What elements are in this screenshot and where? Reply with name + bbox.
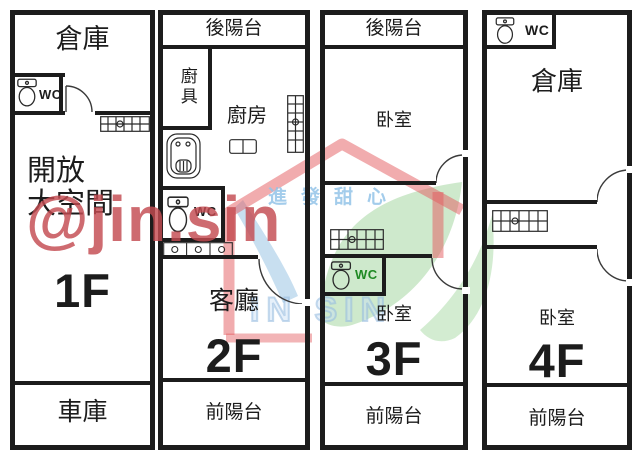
door-frame-notch [626, 279, 634, 286]
stairs-icon [330, 229, 384, 250]
wall [325, 254, 432, 258]
toilet-icon [16, 77, 38, 109]
wall [487, 245, 597, 249]
floor-label-2f: 2F [163, 330, 305, 382]
garage-label: 車庫 [15, 399, 150, 427]
stairs-icon [492, 210, 548, 232]
door-icon [436, 153, 466, 185]
wall [552, 15, 556, 49]
storage-label: 倉庫 [15, 25, 150, 55]
wall [163, 45, 305, 49]
kitchen-cabinet-label: 廚具 [177, 67, 196, 107]
living-room-label: 客廳 [163, 288, 305, 316]
bathtub-icon [166, 133, 201, 179]
bedroom-label: 卧室 [325, 305, 463, 325]
wall [325, 181, 436, 185]
back-balcony-label: 後陽台 [325, 19, 463, 40]
unit-3f: 後陽台 卧室 [320, 10, 468, 450]
stairs-icon [287, 95, 304, 153]
front-balcony-label: 前陽台 [487, 409, 627, 430]
watermark-handle: @jin.sin [26, 186, 281, 253]
floorplan-canvas: 進發甜心 IN SIN 倉庫 WC [0, 0, 640, 463]
kitchen-label: 廚房 [227, 105, 267, 127]
door-frame-notch [462, 150, 470, 157]
toilet-icon [329, 261, 353, 291]
wc-label: WC [525, 23, 549, 38]
stove-icon [229, 139, 257, 154]
bedroom-label: 卧室 [325, 111, 463, 131]
wc-label: WC [39, 88, 62, 102]
wall [163, 378, 305, 382]
floor-label-4f: 4F [487, 335, 627, 387]
front-balcony-label: 前陽台 [163, 403, 305, 424]
toilet-icon [492, 17, 518, 45]
unit-4f: WC 倉庫 卧室 4F 前 [482, 10, 632, 450]
wall [487, 45, 556, 49]
front-balcony-label: 前陽台 [325, 407, 463, 428]
bedroom-label: 卧室 [487, 309, 627, 329]
floor-label-1f: 1F [15, 265, 150, 317]
door-icon [64, 85, 96, 115]
door-icon [597, 247, 632, 282]
wall [325, 45, 463, 49]
wall [208, 48, 212, 130]
wall [325, 292, 386, 296]
wall [487, 383, 627, 387]
door-frame-notch [626, 166, 634, 173]
wall [95, 111, 150, 115]
stairs-icon [100, 116, 150, 132]
wall [382, 258, 386, 296]
wall [487, 200, 597, 204]
wall [15, 381, 150, 385]
back-balcony-label: 後陽台 [163, 19, 305, 40]
storage-label: 倉庫 [487, 67, 627, 96]
wc-label: WC [355, 268, 378, 282]
wall [325, 382, 463, 386]
floor-label-3f: 3F [325, 333, 463, 385]
door-frame-notch [302, 299, 310, 306]
door-icon [597, 168, 632, 204]
wall [163, 255, 258, 259]
door-icon [429, 256, 465, 290]
wall [15, 111, 65, 115]
door-frame-notch [462, 287, 470, 294]
wall [163, 126, 212, 130]
